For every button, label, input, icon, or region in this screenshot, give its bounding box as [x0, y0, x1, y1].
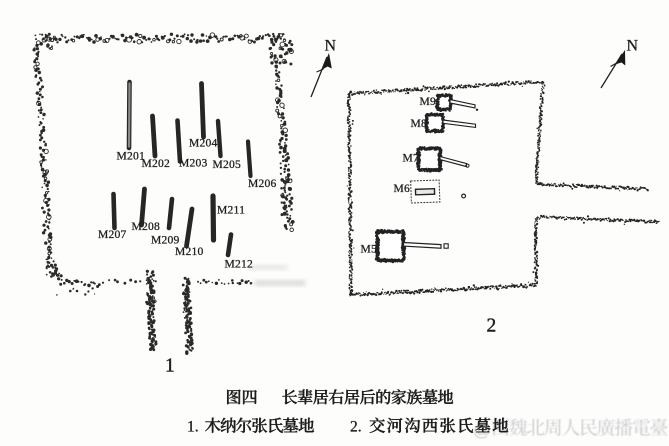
- svg-text:M211: M211: [217, 204, 245, 217]
- svg-text:M7: M7: [403, 152, 420, 165]
- svg-text:M5: M5: [361, 243, 378, 256]
- svg-text:M210: M210: [175, 245, 204, 258]
- svg-text:M208: M208: [132, 220, 161, 233]
- svg-text:N: N: [325, 38, 337, 55]
- svg-text:M9: M9: [420, 95, 437, 108]
- svg-text:2.: 2.: [350, 419, 362, 436]
- svg-text:N: N: [627, 38, 639, 55]
- svg-text:1: 1: [165, 356, 175, 377]
- svg-text:1.: 1.: [187, 419, 199, 436]
- svg-text:M203: M203: [179, 157, 208, 170]
- svg-text:2: 2: [487, 316, 497, 337]
- svg-text:M204: M204: [189, 137, 218, 150]
- svg-text:M6: M6: [394, 182, 411, 195]
- svg-text:M207: M207: [98, 228, 127, 241]
- svg-text:M8: M8: [411, 117, 428, 130]
- svg-text:M202: M202: [142, 157, 171, 170]
- svg-text:M205: M205: [213, 158, 242, 171]
- svg-text:M212: M212: [225, 258, 254, 271]
- svg-text:M206: M206: [248, 177, 277, 190]
